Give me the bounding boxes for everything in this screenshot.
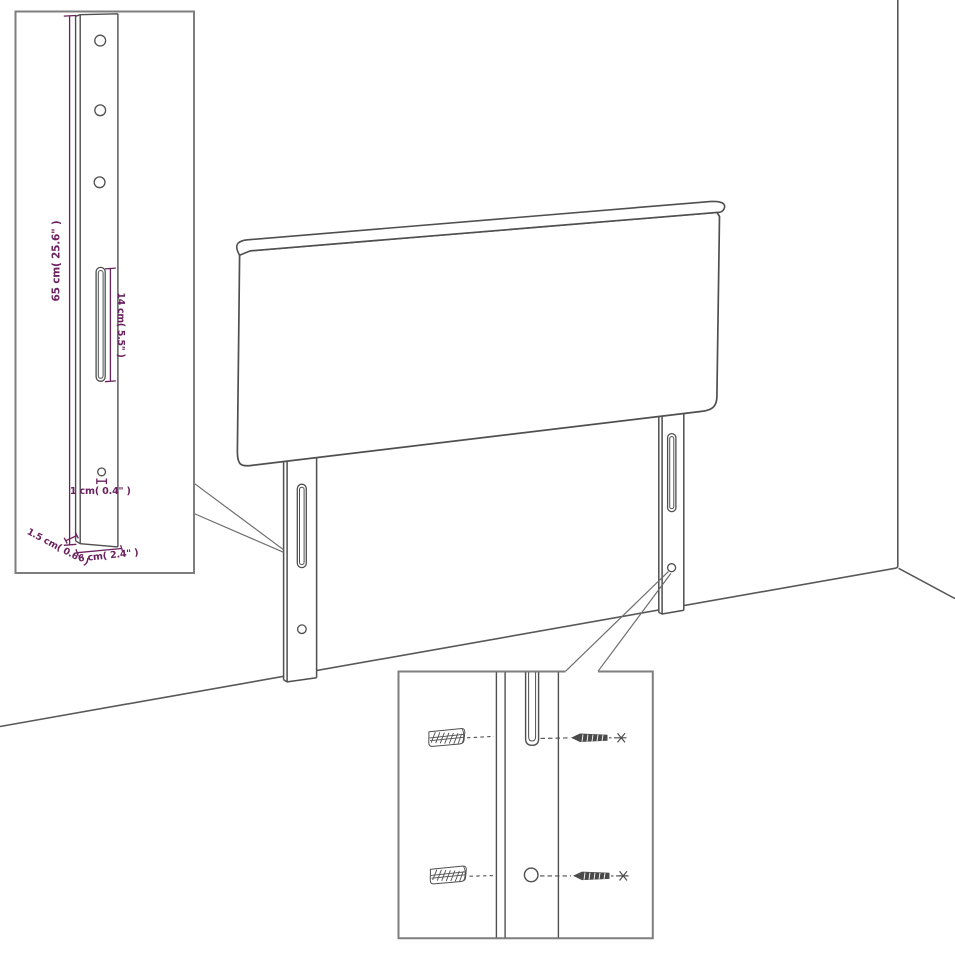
screw-icon	[573, 871, 629, 880]
leg-hole-lower-icon	[94, 177, 105, 188]
wall-plug-icon	[428, 728, 465, 746]
left-leg-hole-icon	[298, 625, 307, 634]
left-leg-slot-icon	[297, 484, 306, 567]
leg-slot-outer	[96, 267, 105, 381]
headboard-dimension-diagram: 65 cm( 25.6" ) 14 cm( 5.5" ) 1 cm( 0.4" …	[0, 0, 955, 955]
leg-dimension-inset: 65 cm( 25.6" ) 14 cm( 5.5" ) 1 cm( 0.4" …	[16, 12, 195, 574]
headboard-panel	[237, 201, 725, 465]
callout-left-leg-lines	[194, 483, 284, 552]
wall-plug-icon	[430, 866, 467, 884]
callout-right-hole-lines	[566, 572, 671, 672]
panel-face	[237, 212, 719, 465]
screw-icon	[571, 733, 627, 742]
right-leg-slot-icon	[668, 434, 676, 512]
right-leg-hole-icon	[668, 564, 676, 572]
slot-dimension-label: 14 cm( 5.5" )	[115, 292, 126, 357]
hole-dimension-label: 1 cm( 0.4" )	[70, 486, 131, 497]
diagram-canvas: 65 cm( 25.6" ) 14 cm( 5.5" ) 1 cm( 0.4" …	[0, 0, 955, 955]
callout-lines	[194, 483, 671, 671]
leg-small-hole-icon	[98, 468, 106, 476]
hardware-inset	[399, 672, 653, 939]
leg-hole-top-icon	[95, 35, 106, 46]
leg-closeup-hole-icon	[524, 868, 538, 882]
floor-line-right	[899, 568, 955, 598]
headboard-left-leg	[284, 455, 317, 682]
height-dimension-label: 65 cm( 25.6" )	[51, 221, 63, 302]
leg-hole-middle-icon	[95, 105, 106, 116]
